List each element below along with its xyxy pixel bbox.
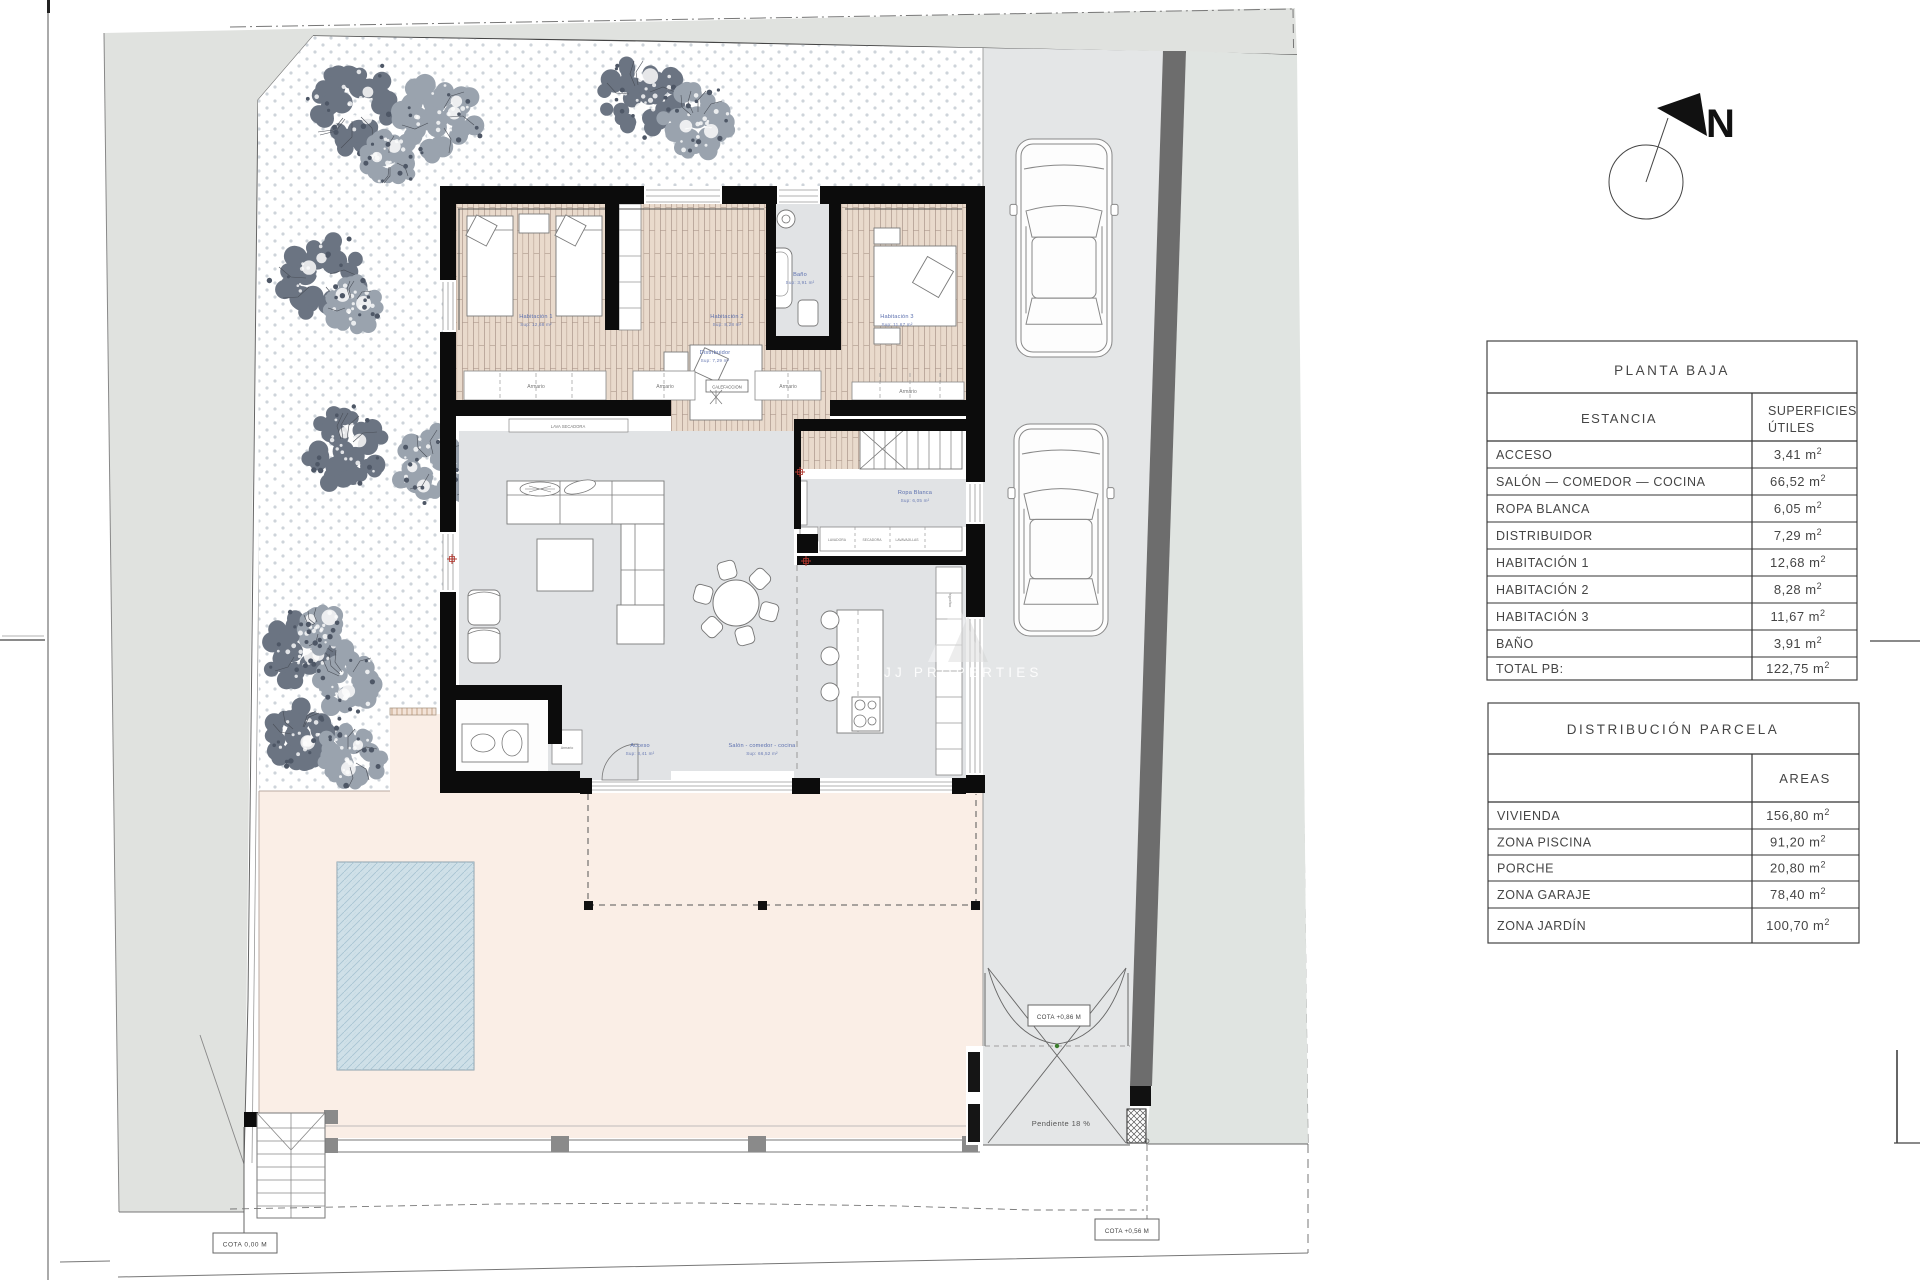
svg-text:SUPERFICIES: SUPERFICIES: [1768, 404, 1857, 418]
svg-text:156,80 m2: 156,80 m2: [1766, 807, 1830, 823]
svg-text:ÚTILES: ÚTILES: [1768, 420, 1815, 435]
svg-text:COTA 0,00 M: COTA 0,00 M: [223, 1242, 267, 1249]
svg-text:COTA +0,86 M: COTA +0,86 M: [1037, 1014, 1081, 1021]
svg-text:DISTRIBUIDOR: DISTRIBUIDOR: [1496, 529, 1593, 543]
svg-text:Sup: 11,67 m²: Sup: 11,67 m²: [881, 322, 912, 327]
svg-text:8,28 m2: 8,28 m2: [1774, 581, 1822, 597]
svg-text:6,05 m2: 6,05 m2: [1774, 500, 1822, 516]
svg-text:66,52 m2: 66,52 m2: [1770, 473, 1826, 489]
svg-text:PLANTA BAJA: PLANTA BAJA: [1614, 363, 1730, 378]
svg-text:Sup: 3,41 m²: Sup: 3,41 m²: [626, 751, 655, 756]
svg-text:Armario: Armario: [561, 746, 574, 750]
svg-text:Acceso: Acceso: [630, 743, 650, 749]
svg-text:HABITACIÓN 3: HABITACIÓN 3: [1496, 609, 1589, 624]
svg-text:20,80 m2: 20,80 m2: [1770, 860, 1826, 876]
svg-text:7,29 m2: 7,29 m2: [1774, 527, 1822, 543]
svg-text:Sup: 12,68 m²: Sup: 12,68 m²: [520, 322, 552, 327]
svg-text:Baño: Baño: [793, 272, 807, 278]
svg-text:Armario: Armario: [527, 384, 545, 390]
svg-text:LAVADORA: LAVADORA: [828, 538, 847, 542]
svg-text:N: N: [1706, 102, 1735, 146]
svg-text:3,41 m2: 3,41 m2: [1774, 446, 1822, 462]
svg-text:Armario: Armario: [899, 389, 917, 395]
svg-text:91,20 m2: 91,20 m2: [1770, 834, 1826, 850]
svg-text:12,68 m2: 12,68 m2: [1770, 554, 1826, 570]
svg-text:Habitación 2: Habitación 2: [710, 314, 744, 320]
svg-text:Sup: 6,05 m²: Sup: 6,05 m²: [901, 498, 930, 503]
svg-text:100,70 m2: 100,70 m2: [1766, 917, 1830, 933]
svg-text:Sup: 7,29 m²: Sup: 7,29 m²: [701, 358, 730, 363]
svg-text:DISTRIBUCIÓN PARCELA: DISTRIBUCIÓN PARCELA: [1567, 722, 1780, 737]
svg-text:LAVAVAJILLAS: LAVAVAJILLAS: [895, 538, 919, 542]
svg-text:AREAS: AREAS: [1779, 771, 1831, 786]
svg-text:Habitación 3: Habitación 3: [880, 314, 914, 320]
svg-text:11,67 m2: 11,67 m2: [1770, 608, 1825, 624]
svg-text:Sup: 3,91 m²: Sup: 3,91 m²: [786, 280, 815, 285]
svg-text:Armario: Armario: [779, 384, 797, 390]
svg-text:Distribuidor: Distribuidor: [700, 350, 731, 356]
svg-text:78,40 m2: 78,40 m2: [1770, 886, 1826, 902]
svg-text:BAÑO: BAÑO: [1496, 637, 1534, 651]
svg-text:CALEFACCION: CALEFACCION: [712, 385, 742, 390]
svg-text:HABITACIÓN 1: HABITACIÓN 1: [1496, 555, 1589, 570]
svg-text:ROPA BLANCA: ROPA BLANCA: [1496, 502, 1590, 516]
svg-text:Ropa Blanca: Ropa Blanca: [898, 490, 933, 496]
svg-text:frigorifico: frigorifico: [948, 593, 952, 608]
svg-text:Habitación 1: Habitación 1: [519, 314, 553, 320]
svg-text:Sup: 66,52 m²: Sup: 66,52 m²: [746, 751, 778, 756]
svg-text:VIVIENDA: VIVIENDA: [1497, 809, 1560, 823]
svg-text:Pendiente 18 %: Pendiente 18 %: [1032, 1119, 1091, 1128]
svg-text:HABITACIÓN 2: HABITACIÓN 2: [1496, 582, 1589, 597]
svg-text:SECADORA: SECADORA: [862, 538, 882, 542]
svg-text:COTA +0,56 M: COTA +0,56 M: [1105, 1228, 1149, 1235]
svg-text:ZONA PISCINA: ZONA PISCINA: [1497, 836, 1592, 850]
svg-text:Sup: 8,28 m²: Sup: 8,28 m²: [713, 322, 742, 327]
svg-text:Salón - comedor - cocina: Salón - comedor - cocina: [729, 743, 797, 749]
svg-text:LAVA SECADORA: LAVA SECADORA: [551, 424, 586, 429]
svg-text:ESTANCIA: ESTANCIA: [1581, 411, 1657, 426]
svg-text:TOTAL PB:: TOTAL PB:: [1496, 662, 1564, 676]
svg-text:ZONA GARAJE: ZONA GARAJE: [1497, 888, 1591, 902]
svg-text:3,91 m2: 3,91 m2: [1774, 635, 1822, 651]
svg-text:ACCESO: ACCESO: [1496, 448, 1552, 462]
svg-text:PORCHE: PORCHE: [1497, 862, 1554, 876]
svg-text:122,75 m2: 122,75 m2: [1766, 660, 1830, 676]
svg-text:ZONA JARDÍN: ZONA JARDÍN: [1497, 918, 1586, 933]
svg-text:SALÓN — COMEDOR — COCINA: SALÓN — COMEDOR — COCINA: [1496, 474, 1706, 489]
svg-text:Armario: Armario: [656, 384, 674, 390]
svg-text:JJ PROPERTIES: JJ PROPERTIES: [884, 665, 1043, 680]
